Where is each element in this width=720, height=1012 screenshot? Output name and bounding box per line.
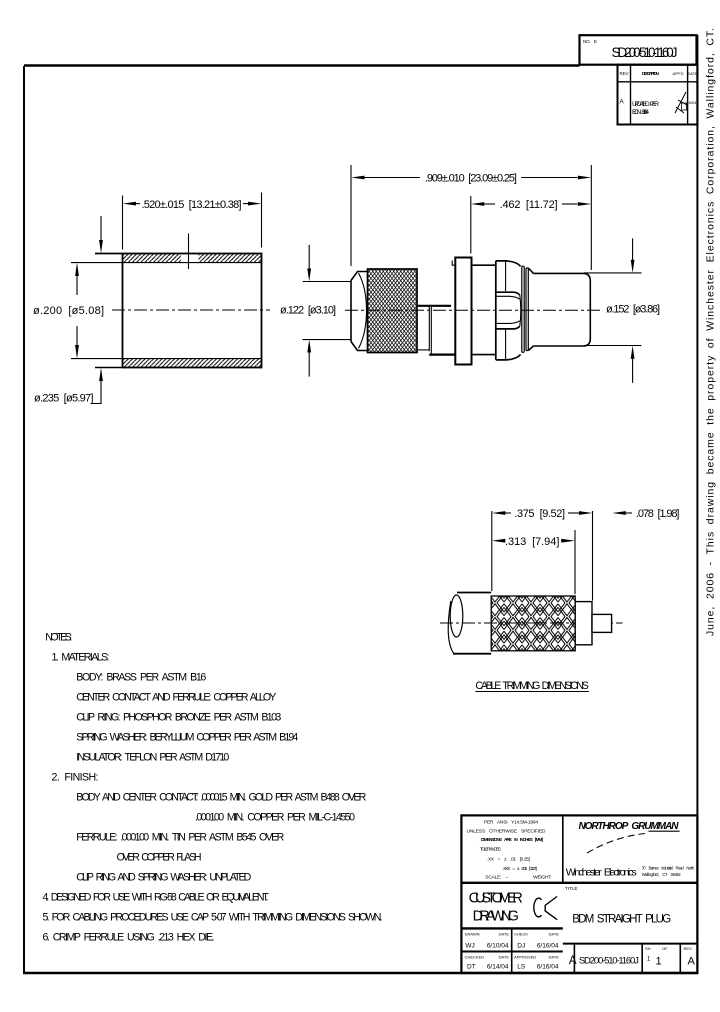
svg-text:ECN 8364: ECN 8364: [632, 109, 649, 116]
svg-text:WJ: WJ: [465, 943, 474, 950]
svg-text:5. FOR CABLING PROCEDURES USE: 5. FOR CABLING PROCEDURES USE CAP 5-07 W…: [43, 911, 383, 923]
svg-text:DATE: DATE: [549, 955, 560, 960]
svg-text:CHECK: CHECK: [514, 931, 528, 936]
svg-text:DATE: DATE: [549, 931, 560, 936]
svg-text:.313 [7.94]: .313 [7.94]: [505, 536, 559, 548]
svg-text:NO. E: NO. E: [583, 39, 597, 44]
svg-text:6/04: 6/04: [689, 100, 698, 105]
svg-text:UPDATED PER: UPDATED PER: [632, 101, 659, 108]
svg-text:4. DESIGNED FOR USE WITH RG-58: 4. DESIGNED FOR USE WITH RG-58 CABLE OR …: [43, 891, 270, 903]
svg-text:FERRULE: .000100 MIN. TIN PER: FERRULE: .000100 MIN. TIN PER ASTM B545 …: [76, 831, 284, 843]
svg-text:CHECKED: CHECKED: [465, 955, 485, 960]
svg-text:DT: DT: [467, 963, 476, 970]
svg-text:6. CRIMP FERRULE USING .213 HE: 6. CRIMP FERRULE USING .213 HEX DIE.: [43, 931, 215, 943]
svg-text:REV: REV: [620, 71, 629, 76]
svg-text:BODY AND CENTER CONTACT: .0000: BODY AND CENTER CONTACT: .000015 MIN. GO…: [76, 791, 366, 803]
svg-text:ø.235 [ø5.97]: ø.235 [ø5.97]: [34, 393, 94, 405]
svg-text:CUSTOMER: CUSTOMER: [469, 890, 523, 906]
svg-text:A: A: [688, 956, 696, 968]
svg-text:DATE: DATE: [499, 955, 510, 960]
svg-text:.375 [9.52]: .375 [9.52]: [514, 508, 565, 520]
svg-text:.462 [11.72]: .462 [11.72]: [500, 199, 558, 211]
svg-text:NORTHROP GRUMMAN: NORTHROP GRUMMAN: [579, 821, 680, 832]
svg-text:Winchester Electronics: Winchester Electronics: [566, 867, 637, 879]
svg-text:June, 2006 - This drawing beca: June, 2006 - This drawing became the pro…: [706, 28, 717, 636]
svg-text:ø.200 [ø5.08]: ø.200 [ø5.08]: [33, 305, 104, 317]
svg-text:DATE: DATE: [688, 72, 698, 76]
svg-text:1. MATERIALS:: 1. MATERIALS:: [52, 651, 110, 663]
svg-text:LS: LS: [517, 963, 526, 970]
svg-text:CLIP RING AND SPRING WASHER: U: CLIP RING AND SPRING WASHER: UNPLATED: [76, 871, 251, 883]
svg-text:APPROVED: APPROVED: [514, 955, 536, 960]
svg-text:A: A: [619, 99, 624, 106]
svg-text:.000100 MIN. COPPER PER MIL-C-: .000100 MIN. COPPER PER MIL-C-14550: [195, 811, 355, 823]
svg-text:DATE: DATE: [499, 931, 510, 936]
svg-text:CLIP RING: PHOSPHOR BRONZE PER: CLIP RING: PHOSPHOR BRONZE PER ASTM B103: [76, 711, 281, 723]
svg-text:WEIGHT:: WEIGHT:: [533, 874, 551, 880]
svg-text:INSULATOR: TEFLON PER ASTM D17: INSULATOR: TEFLON PER ASTM D1710: [76, 751, 229, 763]
svg-text:BODY: BRASS PER ASTM B16: BODY: BRASS PER ASTM B16: [76, 671, 206, 683]
svg-text:SD200-510-1160J: SD200-510-1160J: [579, 956, 639, 967]
svg-text:TITLE: TITLE: [565, 886, 578, 891]
svg-text:DJ: DJ: [517, 943, 525, 950]
svg-text:SD200-510-1160J: SD200-510-1160J: [612, 45, 678, 60]
svg-text:DIMENSIONS ARE IN INCHES [MM]: DIMENSIONS ARE IN INCHES [MM]: [481, 837, 543, 843]
svg-text:OF: OF: [662, 946, 668, 951]
svg-text:APP'D: APP'D: [672, 72, 683, 76]
svg-text:ø.152 [ø3.86]: ø.152 [ø3.86]: [606, 304, 660, 316]
svg-text:.520±.015 [13.21±0.38]: .520±.015 [13.21±0.38]: [142, 199, 242, 211]
svg-text:6/16/04: 6/16/04: [537, 943, 559, 950]
svg-text:DRAWN: DRAWN: [465, 931, 480, 936]
svg-text:.078 [1.98]: .078 [1.98]: [636, 508, 680, 520]
svg-text:SPRING WASHER: BERYLLIUM COPPE: SPRING WASHER: BERYLLIUM COPPER PER ASTM…: [76, 731, 298, 743]
svg-text:6/16/04: 6/16/04: [537, 963, 559, 970]
svg-text:70 Barnes Industrial Road Nort: 70 Barnes Industrial Road North: [642, 866, 695, 871]
svg-text:6/14/04: 6/14/04: [487, 963, 509, 970]
svg-text:BDM STRAIGHT PLUG: BDM STRAIGHT PLUG: [572, 913, 671, 925]
svg-text:DESCRIPTION: DESCRIPTION: [642, 71, 660, 76]
svg-text:ø.122 [ø3.10]: ø.122 [ø3.10]: [280, 305, 336, 317]
svg-text:DRAWING: DRAWING: [473, 909, 519, 925]
svg-text:.909±.010 [23.09±0.25]: .909±.010 [23.09±0.25]: [425, 173, 517, 185]
svg-text:PER ANSI Y14.5M-1994: PER ANSI Y14.5M-1994: [484, 820, 538, 826]
svg-text:NOTES:: NOTES:: [45, 631, 72, 643]
svg-text:1: 1: [656, 956, 662, 968]
svg-text:SCALE: --: SCALE: --: [485, 874, 508, 880]
svg-text:SH: SH: [645, 946, 651, 951]
svg-text:CABLE TRIMMING DIMENSIONS: CABLE TRIMMING DIMENSIONS: [475, 680, 588, 692]
svg-text:6/10/04: 6/10/04: [487, 943, 509, 950]
svg-text:OVER COPPER FLASH: OVER COPPER FLASH: [117, 851, 202, 863]
svg-text:TOLERANCES: TOLERANCES: [480, 847, 501, 853]
svg-text:UNLESS OTHERWISE SPECIFIED: UNLESS OTHERWISE SPECIFIED: [467, 829, 547, 835]
svg-text:.XXX = ± .005 [0.127]: .XXX = ± .005 [0.127]: [503, 866, 537, 872]
svg-text:CENTER CONTACT AND FERRULE: CO: CENTER CONTACT AND FERRULE: COPPER ALLOY: [76, 691, 276, 703]
svg-text:.XX = ± .01 [0.25]: .XX = ± .01 [0.25]: [487, 857, 530, 863]
svg-text:Wallingford, CT 06492: Wallingford, CT 06492: [642, 872, 682, 877]
svg-text:A: A: [569, 955, 577, 967]
svg-text:REV: REV: [684, 946, 693, 951]
svg-text:2. FINISH:: 2. FINISH:: [52, 771, 99, 783]
